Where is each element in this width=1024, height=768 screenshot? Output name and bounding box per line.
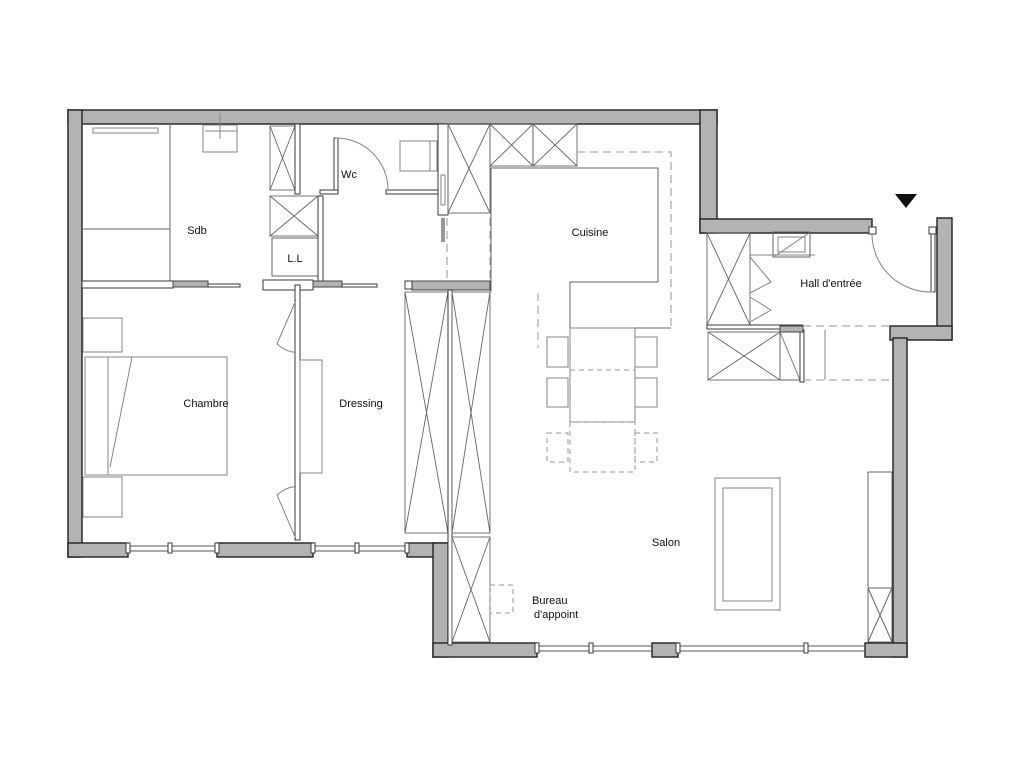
sofa [715, 478, 780, 610]
kitchen-overhead-cabinets-dashed [577, 152, 671, 327]
window-mullion [355, 543, 359, 553]
wall-bureau-step [433, 543, 448, 657]
label-cuisine: Cuisine [572, 227, 609, 239]
nightstand-top [83, 318, 122, 352]
wall-bottom-salon-pier [652, 643, 678, 657]
entry-door-leaf [931, 234, 935, 292]
label-chambre: Chambre [183, 398, 228, 410]
window-salon-left [537, 646, 652, 651]
entry-door-swing [872, 234, 933, 292]
entry-door-jamb-left [869, 227, 876, 234]
room-dressing [300, 360, 322, 473]
closet-top-cap [405, 281, 412, 289]
radiator-column [868, 472, 892, 642]
bed-cover-fold [108, 357, 132, 475]
chair-dashed [635, 433, 657, 462]
window-mullion [168, 543, 172, 553]
windows [126, 543, 865, 653]
wardrobe [300, 360, 322, 473]
window-mullion [405, 543, 409, 553]
wall-wc-right [438, 124, 448, 215]
wall-wc-bottom-right [386, 190, 440, 194]
towel-rail [93, 128, 158, 133]
chair [547, 378, 568, 407]
nightstand-bottom [83, 477, 122, 517]
wall-sdb-wc [295, 124, 300, 194]
floor-plan: Sdb Wc L.L Cuisine Hall d'entrée Chambre… [0, 0, 1024, 768]
wall-ll-right [318, 196, 323, 281]
window-mullion [311, 543, 315, 553]
wc-fixture [400, 141, 437, 171]
sliding-door-wall [82, 280, 377, 290]
desk-dashed [490, 585, 513, 613]
window-salon-right [678, 646, 865, 651]
kitchen-cabinet-2 [533, 124, 577, 166]
hall-closet-folding-doors [750, 257, 771, 322]
wc-door-leaf [334, 138, 338, 190]
window-mullion [804, 643, 808, 653]
label-dressing: Dressing [339, 398, 382, 410]
entry-door-jamb-right [929, 227, 936, 234]
wall-right-upper [937, 218, 952, 340]
wall-sdb-chambre [82, 281, 173, 288]
dining-table-extension [570, 422, 635, 472]
kitchen-cabinet-1 [490, 124, 533, 166]
closet-divider-wall [448, 290, 452, 645]
wall-bottom-salon-corner [865, 643, 907, 657]
label-bureau-line2: d'appoint [534, 609, 578, 621]
chair-dashed [547, 433, 568, 462]
hall-closet-lower-wall [800, 330, 804, 382]
window-mullion [215, 543, 219, 553]
hall-closet-upper [707, 233, 750, 325]
wall-left [68, 110, 82, 557]
wall-chambre-dressing [295, 285, 300, 540]
wall-wc-bottom-left [320, 190, 338, 194]
window-mullion [676, 643, 680, 653]
label-salon: Salon [652, 537, 680, 549]
sliding-door-panel-1 [173, 281, 208, 287]
label-wc: Wc [341, 169, 357, 181]
wall-bottom-chambre-2 [217, 543, 313, 557]
sliding-door-panel-2 [313, 281, 342, 287]
closet-left-xbox [405, 292, 448, 533]
closet-top-wall [412, 281, 490, 290]
window-dressing [313, 546, 407, 551]
floor-plan-drawing: Sdb Wc L.L Cuisine Hall d'entrée Chambre… [0, 0, 1024, 768]
room-wc [320, 124, 448, 242]
sliding-door-leaf-2 [342, 284, 377, 287]
hall-closet-lower [708, 332, 780, 380]
entrance-arrow-icon [895, 194, 917, 208]
wall-top [68, 110, 717, 124]
label-ll: L.L [287, 253, 302, 265]
bed [85, 357, 227, 475]
label-bureau-line1: Bureau [532, 595, 567, 607]
kitchen-counter-edge [491, 168, 671, 328]
kitchen-tall-cabinet [448, 124, 490, 213]
hall-cabinet-diagonal [775, 233, 809, 256]
central-closets [405, 281, 490, 645]
chair [635, 378, 657, 407]
label-hall: Hall d'entrée [800, 278, 861, 290]
outer-walls [68, 110, 952, 657]
closet-right-xbox-lower [452, 537, 490, 642]
pocket-door-panel [441, 218, 445, 242]
closet-right-xbox-upper [452, 292, 490, 533]
chair [547, 337, 568, 367]
wall-hall-top [700, 219, 872, 233]
label-sdb: Sdb [187, 225, 207, 237]
sliding-door-leaf-1 [208, 284, 240, 287]
sofa-inner [723, 488, 772, 601]
hall-dashed-boundary [803, 326, 893, 380]
chambre-door-swing-top [277, 300, 296, 352]
chair [635, 337, 657, 367]
hall-sliding-panel [780, 326, 803, 332]
ll-xbox [270, 196, 318, 236]
window-mullion [589, 643, 593, 653]
window-mullion [126, 543, 130, 553]
bathtub-outline [82, 124, 170, 281]
dining-area [547, 328, 657, 472]
wall-bottom-chambre-1 [68, 543, 128, 557]
dining-table [570, 328, 635, 422]
wall-right [893, 338, 907, 657]
wall-ll-bottom [263, 280, 313, 290]
room-cuisine [447, 124, 671, 348]
room-sdb [82, 113, 237, 281]
chambre-door-swing-bottom [277, 487, 296, 539]
wc-door-swing [336, 138, 388, 190]
wall-top-step [700, 110, 717, 233]
hall-closet-lower-diagonal [780, 332, 800, 380]
room-chambre [83, 285, 300, 540]
duct-xbox [270, 126, 295, 190]
window-mullion [535, 643, 539, 653]
